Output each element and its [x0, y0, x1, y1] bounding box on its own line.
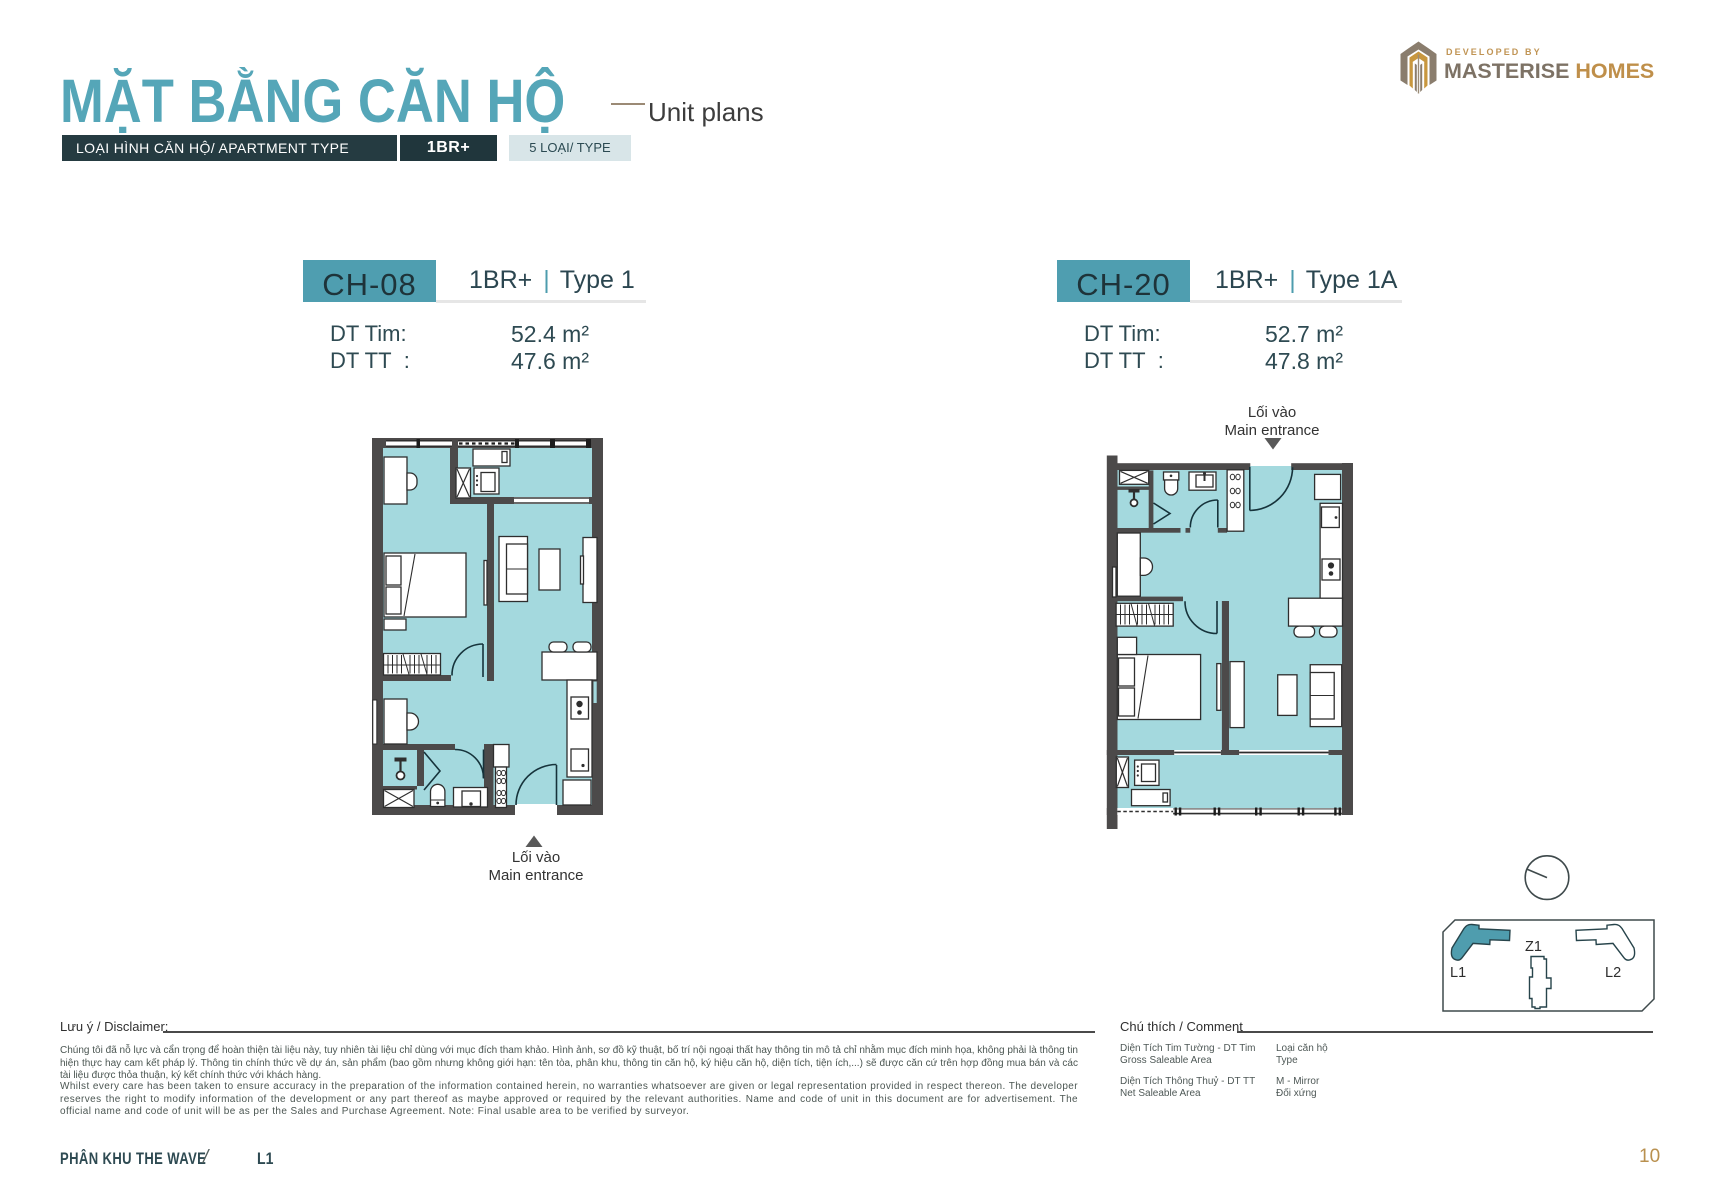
svg-text:L2: L2 — [1605, 965, 1621, 981]
svg-text:L1: L1 — [1450, 965, 1466, 981]
svg-text:MASTERISE HOMES: MASTERISE HOMES — [1444, 59, 1654, 83]
svg-text:DEVELOPED BY: DEVELOPED BY — [1446, 47, 1542, 57]
svg-text:Z1: Z1 — [1525, 939, 1542, 955]
